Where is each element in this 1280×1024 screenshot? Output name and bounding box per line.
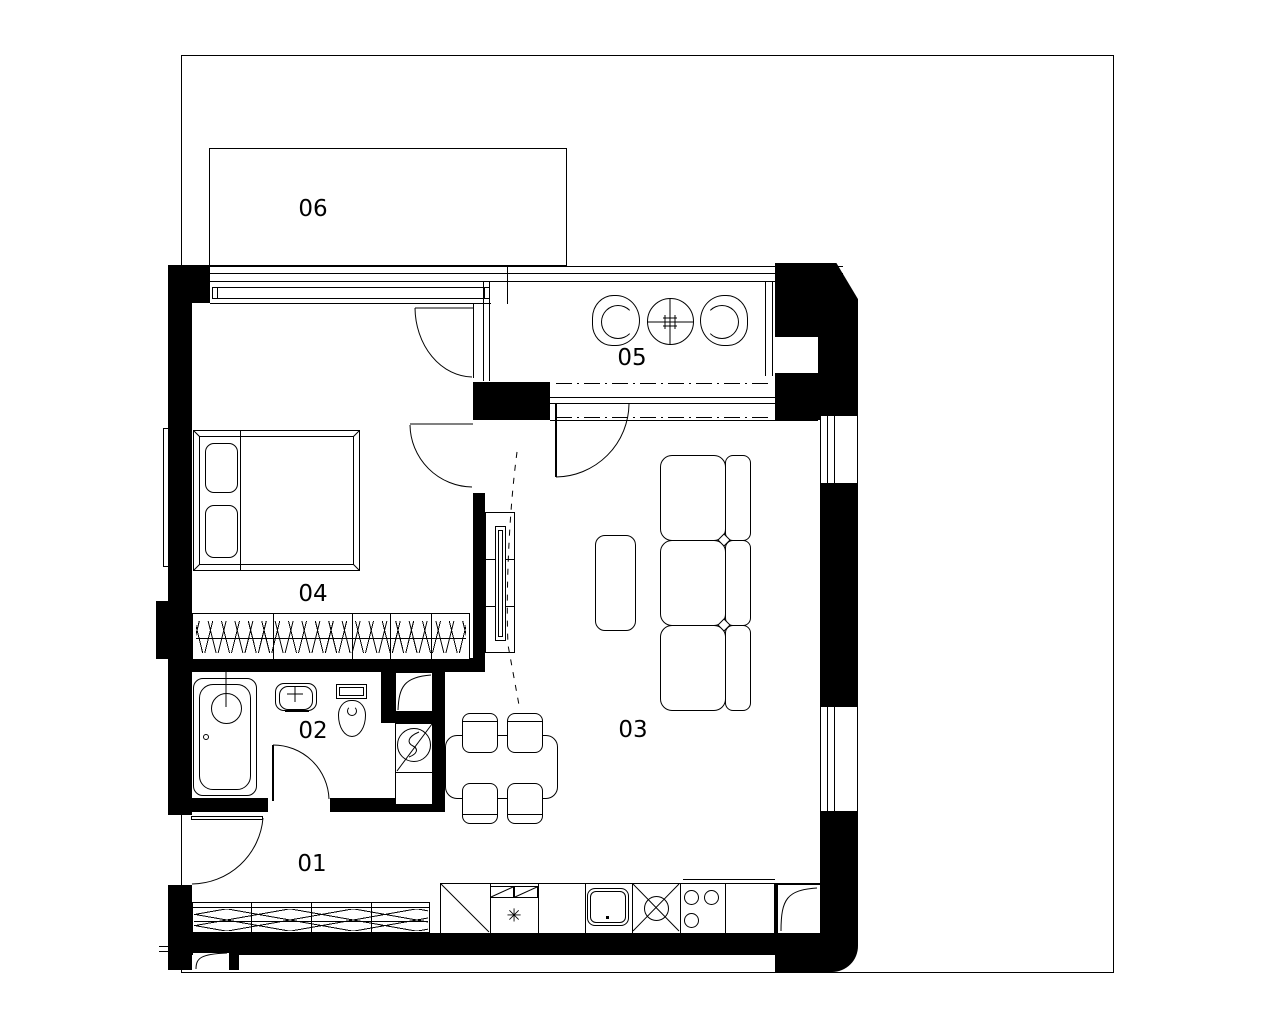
floor-plan-canvas: 01 02 03 04 05 06 ✳ bbox=[0, 0, 1280, 1024]
room-label-03: 03 bbox=[618, 717, 647, 743]
room-label-01: 01 bbox=[297, 851, 326, 877]
sink-unit-cross bbox=[633, 884, 679, 931]
room-label-06: 06 bbox=[298, 196, 327, 222]
balcony-door-arc bbox=[415, 308, 472, 377]
fridge-diagonal bbox=[441, 884, 489, 932]
living-door-arc bbox=[556, 404, 629, 477]
room-label-02: 02 bbox=[298, 718, 327, 744]
entry-door-arc bbox=[192, 818, 263, 884]
shaft-curve bbox=[781, 888, 817, 931]
ceiling-projection-line bbox=[507, 452, 519, 705]
balcony-table-cross bbox=[647, 299, 693, 345]
room-label-05: 05 bbox=[617, 345, 646, 371]
bathroom-door-arc bbox=[273, 745, 329, 799]
annotation-lines bbox=[0, 0, 1280, 1024]
room-label-04: 04 bbox=[298, 581, 327, 607]
washbasin-cross bbox=[287, 686, 303, 702]
sofa-junction-diamond bbox=[718, 534, 730, 546]
flap-diagonal bbox=[515, 887, 537, 897]
shaft-curve bbox=[196, 953, 227, 969]
dishwasher-symbol: ✳ bbox=[506, 906, 521, 927]
bedroom-door-arc bbox=[410, 425, 472, 487]
bed-corner-ticks bbox=[194, 431, 359, 570]
niche-flap-curve bbox=[398, 675, 431, 710]
flap-diagonal bbox=[491, 887, 513, 897]
sofa-junction-diamond bbox=[718, 619, 730, 631]
